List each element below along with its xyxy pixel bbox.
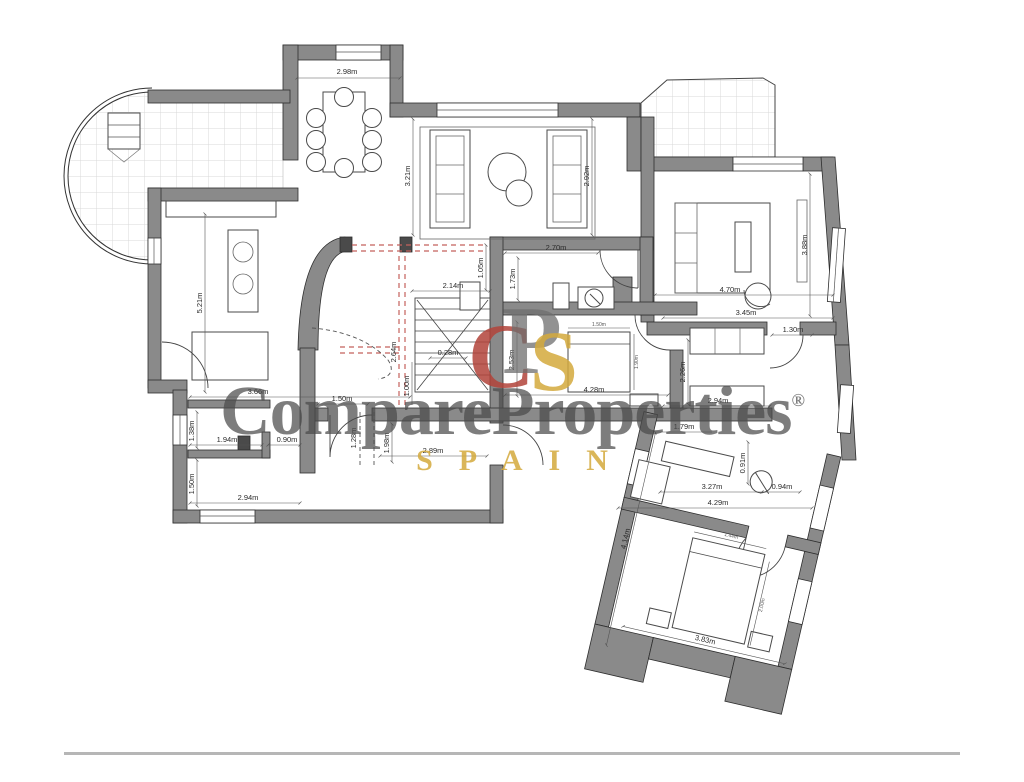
dimension-label: 0.28m: [438, 348, 459, 357]
floor-plan-page: 3.83m 4.14m 1.44m 2.00m: [0, 0, 1024, 782]
dimension-label: 0.91m: [738, 453, 747, 474]
vanity: [661, 441, 734, 476]
dimension-label: 1.94m: [217, 435, 238, 444]
window-south: [200, 510, 255, 523]
door-arc-hall: [503, 425, 543, 465]
dimension-label: 1.28m: [349, 428, 358, 449]
terrace-tiles-2: [641, 78, 775, 157]
bench: [735, 222, 751, 272]
nightstand-right: [748, 631, 773, 652]
dimension-label: 1.50m: [332, 394, 353, 403]
staircase: [415, 298, 490, 392]
bidet: [553, 283, 569, 309]
door-arc-master: [770, 335, 803, 368]
chair-icon: [307, 131, 326, 150]
dimension-label: 1.05m: [476, 258, 485, 279]
southeast-wing: 3.83m 4.14m 1.44m 2.00m: [585, 412, 841, 715]
wall-hall-left: [300, 348, 315, 473]
chair-icon: [307, 109, 326, 128]
dimension-label: 3.21m: [403, 166, 412, 187]
wall-master-bottom-right: [800, 322, 836, 335]
kitchen-counter: [166, 201, 276, 217]
wall-spine-lower: [490, 465, 503, 523]
wall-terrace-top: [148, 90, 290, 103]
chair-icon: [363, 131, 382, 150]
dimension-label: 2.89m: [423, 446, 444, 455]
side-table: [506, 180, 532, 206]
closet-set: [690, 328, 764, 406]
stub-wall-2: [188, 450, 270, 458]
window-wing-east-2: [788, 579, 812, 625]
dimension-label: 2.94m: [708, 396, 729, 405]
window-dining: [336, 45, 381, 60]
window-wing-east-1: [810, 485, 834, 531]
wall-wing-bottom-left: [585, 624, 654, 682]
bed-2: [568, 332, 630, 392]
dimension-label: 1.79m: [674, 422, 695, 431]
chair-icon: [335, 159, 354, 178]
dimension-label: 2.92m: [582, 166, 591, 187]
dimension-label: 2.70m: [546, 243, 567, 252]
dimension-label: 5.21m: [195, 293, 204, 314]
wall-wing-bottom-mid: [648, 637, 735, 677]
dimension-label: 0.90m: [277, 435, 298, 444]
dimension-label: 2.98m: [337, 67, 358, 76]
dimension-label: 1.38m: [187, 421, 196, 442]
window-kitchen-west: [148, 238, 161, 264]
wardrobe-top: [690, 328, 764, 354]
bottom-divider: [64, 752, 960, 755]
dimension-label: 2.00m: [758, 598, 767, 613]
dimension-label: 4.70m: [720, 285, 741, 294]
dimension-label: 4.28m: [584, 385, 605, 394]
nightstand-left: [646, 608, 671, 629]
window-southwest: [173, 415, 187, 445]
dimension-label: 1.90m: [634, 355, 640, 369]
kitchen-set: [166, 201, 276, 380]
dimension-label: 1.50m: [592, 322, 606, 328]
wall-wing-divider-a: [621, 497, 748, 537]
dimension-label: 0.94m: [772, 482, 793, 491]
chair-icon: [363, 153, 382, 172]
window-master-top: [733, 157, 803, 171]
stub-wall-1: [188, 400, 270, 408]
dimension-label: 2.53m: [507, 350, 516, 371]
master-bedroom-set: [675, 200, 807, 309]
window-living: [437, 103, 558, 117]
window-connector-east: [837, 385, 853, 434]
bed-3: [672, 538, 765, 644]
chair-icon: [307, 153, 326, 172]
wall-west-lower: [173, 390, 187, 523]
bed-bench: [630, 394, 658, 406]
chair-icon: [335, 88, 354, 107]
dimension-label: 2.64m: [389, 342, 398, 363]
dimension-label: 1.73m: [508, 269, 517, 290]
wall-west-upper: [148, 188, 161, 388]
wall-terrace2-bottom-left: [641, 157, 733, 171]
wall-terrace-bottom: [148, 188, 298, 201]
dimension-label: 1.00m: [402, 376, 411, 397]
pillar-3: [238, 436, 250, 450]
pillar-1: [340, 237, 352, 252]
wall-living-ne: [627, 117, 641, 171]
bed-master: [675, 203, 770, 293]
kitchen-unit: [192, 332, 268, 380]
dimension-label: 3.66m: [248, 387, 269, 396]
dimension-label: 1.30m: [783, 325, 804, 334]
wall-wing-left: [595, 412, 658, 628]
dimension-label: 3.27m: [702, 482, 723, 491]
wall-spine-upper: [490, 237, 503, 423]
dimension-label: 1.50m: [187, 474, 196, 495]
dimension-label: 3.45m: [736, 308, 757, 317]
dimension-label: 2.26m: [678, 362, 687, 383]
dimension-label: 2.14m: [443, 281, 464, 290]
living-room-set: [420, 127, 595, 239]
dimension-label: 3.88m: [800, 235, 809, 256]
dimension-label: 2.94m: [238, 493, 259, 502]
chair-icon: [363, 109, 382, 128]
wall-mid-long: [372, 408, 772, 421]
dining-set: [307, 88, 382, 178]
terrace-northeast: [641, 78, 775, 157]
floor-plan-drawing: 3.83m 4.14m 1.44m 2.00m: [0, 0, 1024, 782]
dimension-label: 4.29m: [708, 498, 729, 507]
dimension-label: 1.98m: [382, 433, 391, 454]
